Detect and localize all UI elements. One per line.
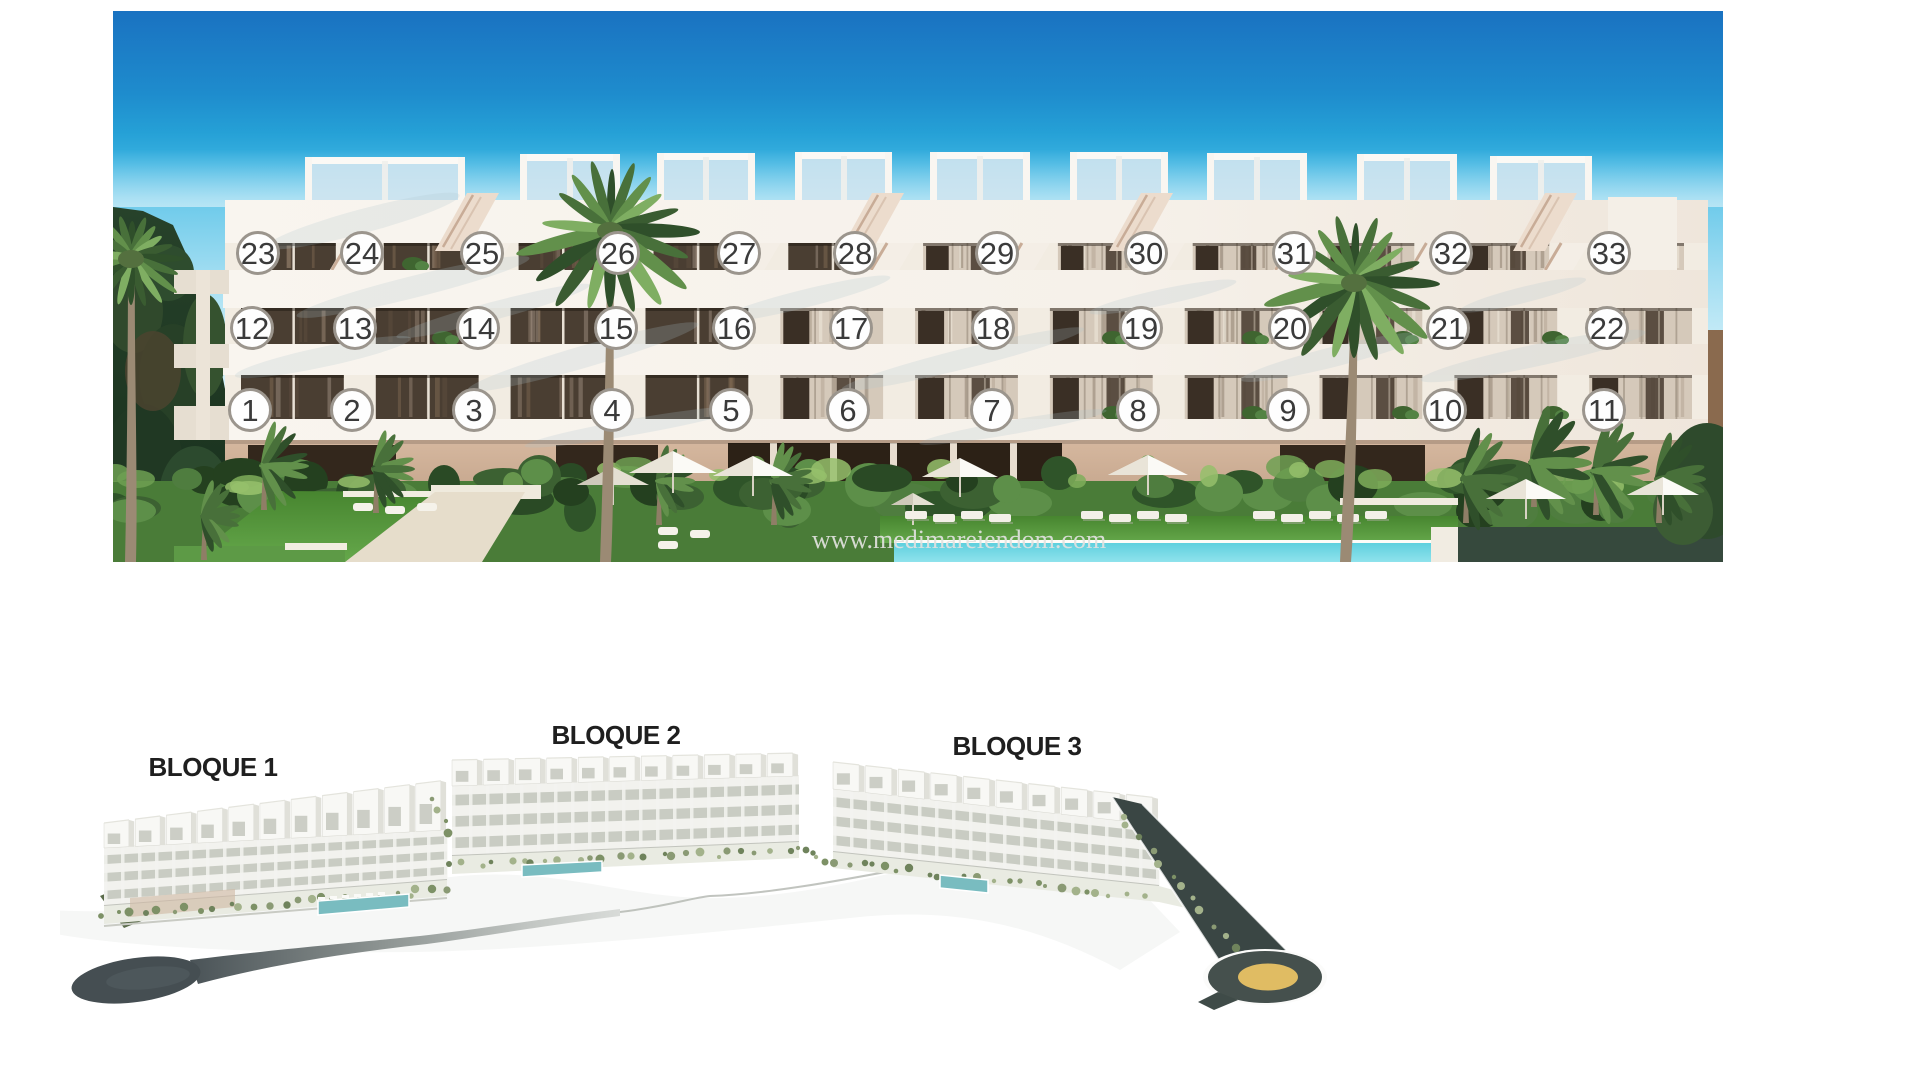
svg-text:1: 1 [241, 393, 258, 428]
svg-text:10: 10 [1428, 393, 1462, 428]
svg-text:BLOQUE 3: BLOQUE 3 [953, 731, 1082, 761]
svg-text:9: 9 [1279, 393, 1296, 428]
svg-text:30: 30 [1129, 236, 1163, 271]
svg-text:20: 20 [1273, 311, 1307, 346]
svg-text:2: 2 [343, 393, 360, 428]
svg-text:16: 16 [717, 311, 751, 346]
svg-text:26: 26 [601, 236, 635, 271]
svg-text:32: 32 [1434, 236, 1468, 271]
svg-text:15: 15 [599, 311, 633, 346]
svg-text:31: 31 [1277, 236, 1311, 271]
svg-text:8: 8 [1129, 393, 1146, 428]
svg-text:33: 33 [1592, 236, 1626, 271]
svg-text:25: 25 [465, 236, 499, 271]
svg-text:29: 29 [980, 236, 1014, 271]
svg-text:21: 21 [1431, 311, 1465, 346]
svg-text:6: 6 [839, 393, 856, 428]
svg-text:www.medimareiendom.com: www.medimareiendom.com [812, 525, 1106, 554]
svg-text:22: 22 [1590, 311, 1624, 346]
svg-text:28: 28 [838, 236, 872, 271]
svg-text:5: 5 [722, 393, 739, 428]
svg-text:12: 12 [235, 311, 269, 346]
svg-text:14: 14 [461, 311, 495, 346]
svg-text:4: 4 [603, 393, 620, 428]
svg-text:13: 13 [338, 311, 372, 346]
svg-text:19: 19 [1124, 311, 1158, 346]
svg-text:3: 3 [465, 393, 482, 428]
svg-text:23: 23 [241, 236, 275, 271]
svg-text:24: 24 [345, 236, 379, 271]
svg-text:7: 7 [983, 393, 1000, 428]
svg-text:11: 11 [1588, 393, 1620, 428]
svg-text:27: 27 [722, 236, 756, 271]
svg-text:BLOQUE 1: BLOQUE 1 [149, 752, 278, 782]
svg-text:18: 18 [976, 311, 1010, 346]
svg-text:17: 17 [834, 311, 868, 346]
svg-text:BLOQUE 2: BLOQUE 2 [552, 720, 681, 750]
